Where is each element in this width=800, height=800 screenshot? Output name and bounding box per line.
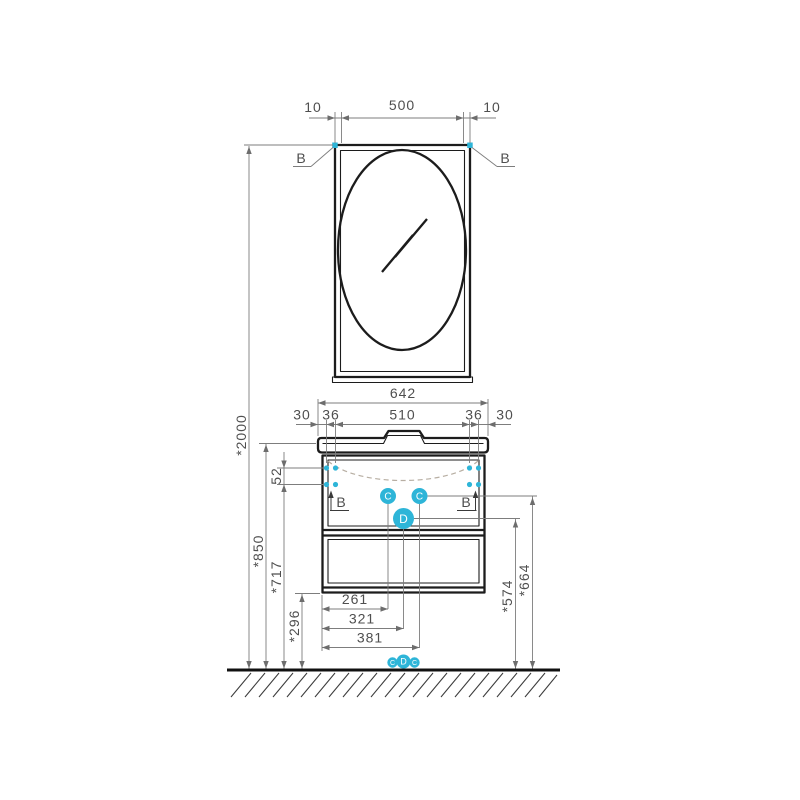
ground-hatching (231, 673, 557, 697)
dim-label-642: 642 (390, 385, 416, 401)
dim-label-36-right: 36 (465, 407, 483, 423)
mount-dot (333, 482, 338, 487)
dim-label-850: *850 (250, 535, 266, 568)
dim-296: *296 (286, 594, 320, 670)
port-d-label: D (399, 512, 408, 526)
dim-label-261: 261 (342, 591, 368, 607)
dim-label-381: 381 (357, 630, 383, 646)
dim-label-30-right: 30 (496, 407, 514, 423)
floor-port-left-label: C (390, 660, 395, 667)
mount-point-marker-left (332, 143, 338, 149)
mirror-callout-right-label: B (500, 150, 509, 166)
dim-label-36-left: 36 (322, 407, 340, 423)
mirror-top-dimension: 10 500 10 (304, 97, 501, 143)
mount-dot (333, 465, 338, 470)
dim-label-321: 321 (349, 611, 375, 627)
mount-dot (476, 465, 481, 470)
mount-dot (467, 465, 472, 470)
technical-drawing-canvas: B B 10 500 10 (0, 0, 800, 800)
mount-point-marker-right (467, 143, 473, 149)
ground (227, 670, 560, 697)
dim-label-717: *717 (268, 561, 284, 594)
mirror-frame (332, 143, 473, 383)
mount-dot (467, 482, 472, 487)
mount-dot (476, 482, 481, 487)
dim-label-574: *574 (499, 580, 515, 613)
dim-label-52: 52 (268, 467, 284, 485)
dim-label-2000: *2000 (233, 414, 249, 456)
floor-port-right-label: C (412, 660, 417, 667)
dim-label-296: *296 (286, 610, 302, 643)
port-c-right-label: C (416, 492, 423, 503)
dim-label-10-left: 10 (304, 99, 322, 115)
dim-label-664: *664 (516, 564, 532, 597)
port-c-left-label: C (384, 492, 391, 503)
cabinet-callout-right-label: B (461, 494, 470, 510)
mount-dot (324, 465, 329, 470)
dim-label-10-right: 10 (483, 99, 501, 115)
floor-port-center-label: D (400, 657, 407, 667)
installation-diagram: B B 10 500 10 (0, 0, 800, 800)
washbasin (318, 431, 488, 453)
dim-label-510: 510 (389, 407, 415, 423)
basin-profile (318, 431, 488, 453)
dim-label-30-left: 30 (293, 407, 311, 423)
mount-dot (324, 482, 329, 487)
cabinet-callout-left-label: B (336, 494, 345, 510)
dim-label-500: 500 (389, 97, 415, 113)
floor-connections: C C D (387, 655, 419, 669)
mirror-callout-left-label: B (296, 150, 305, 166)
